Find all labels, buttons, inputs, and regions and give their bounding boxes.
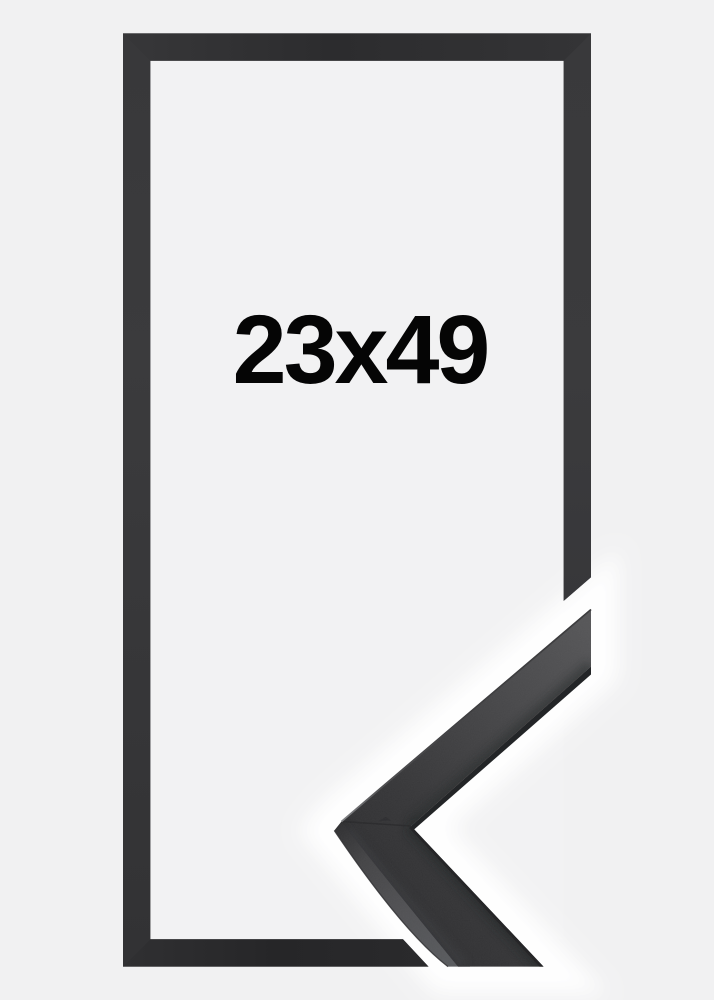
svg-text:23x49: 23x49 — [233, 295, 488, 404]
